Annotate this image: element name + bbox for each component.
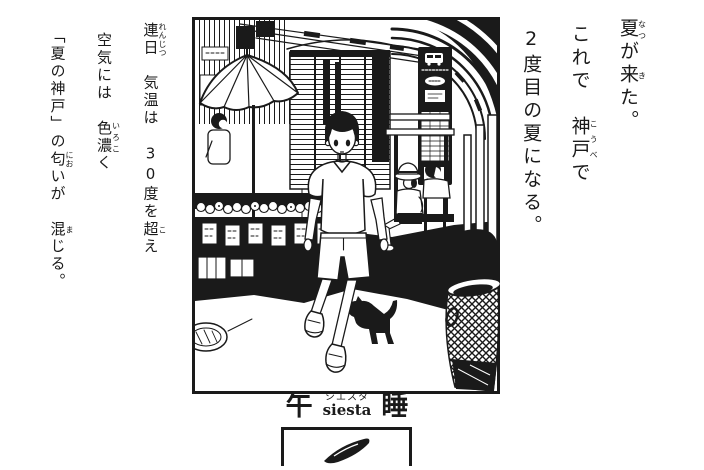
shrub-shadow xyxy=(455,229,497,284)
next-panel-illustration xyxy=(284,430,409,466)
street-scene-illustration xyxy=(192,17,500,401)
title-kanji-right: 睡 xyxy=(381,393,408,420)
boy-right-sneaker xyxy=(326,344,346,372)
wire-trash-basket xyxy=(444,275,500,391)
caption-column: 夏なつが来きた。 xyxy=(604,18,652,238)
dark-object xyxy=(324,439,369,464)
manga-panel xyxy=(192,17,500,401)
chapter-title: 午 シエスタ siesta 睡 xyxy=(193,389,501,423)
title-kanji-left: 午 xyxy=(286,393,313,420)
caption-column: 連日れんじつ 気温は 30度を超こえ xyxy=(127,22,174,291)
caption-column: 「夏の神戸」の匂においが 混まじる。 xyxy=(34,22,81,291)
right-caption: 夏なつが来きた。 これで 神戸こうべで 2度目の夏になる。 xyxy=(507,18,652,238)
title-romaji: siesta xyxy=(323,403,372,419)
manga-page: { "colors": {"ink": "#1a1a1a", "paper": … xyxy=(0,0,704,466)
title-ruby: シエスタ siesta xyxy=(323,393,372,419)
caption-column: 2度目の夏になる。 xyxy=(507,18,555,238)
caption-column: これで 神戸こうべで xyxy=(555,18,603,238)
caption-column: 空気には 色濃いろこく xyxy=(81,22,128,291)
next-panel xyxy=(281,427,412,466)
left-caption: 連日れんじつ 気温は 30度を超こえ 空気には 色濃いろこく 「夏の神戸」の匂に… xyxy=(34,22,174,291)
